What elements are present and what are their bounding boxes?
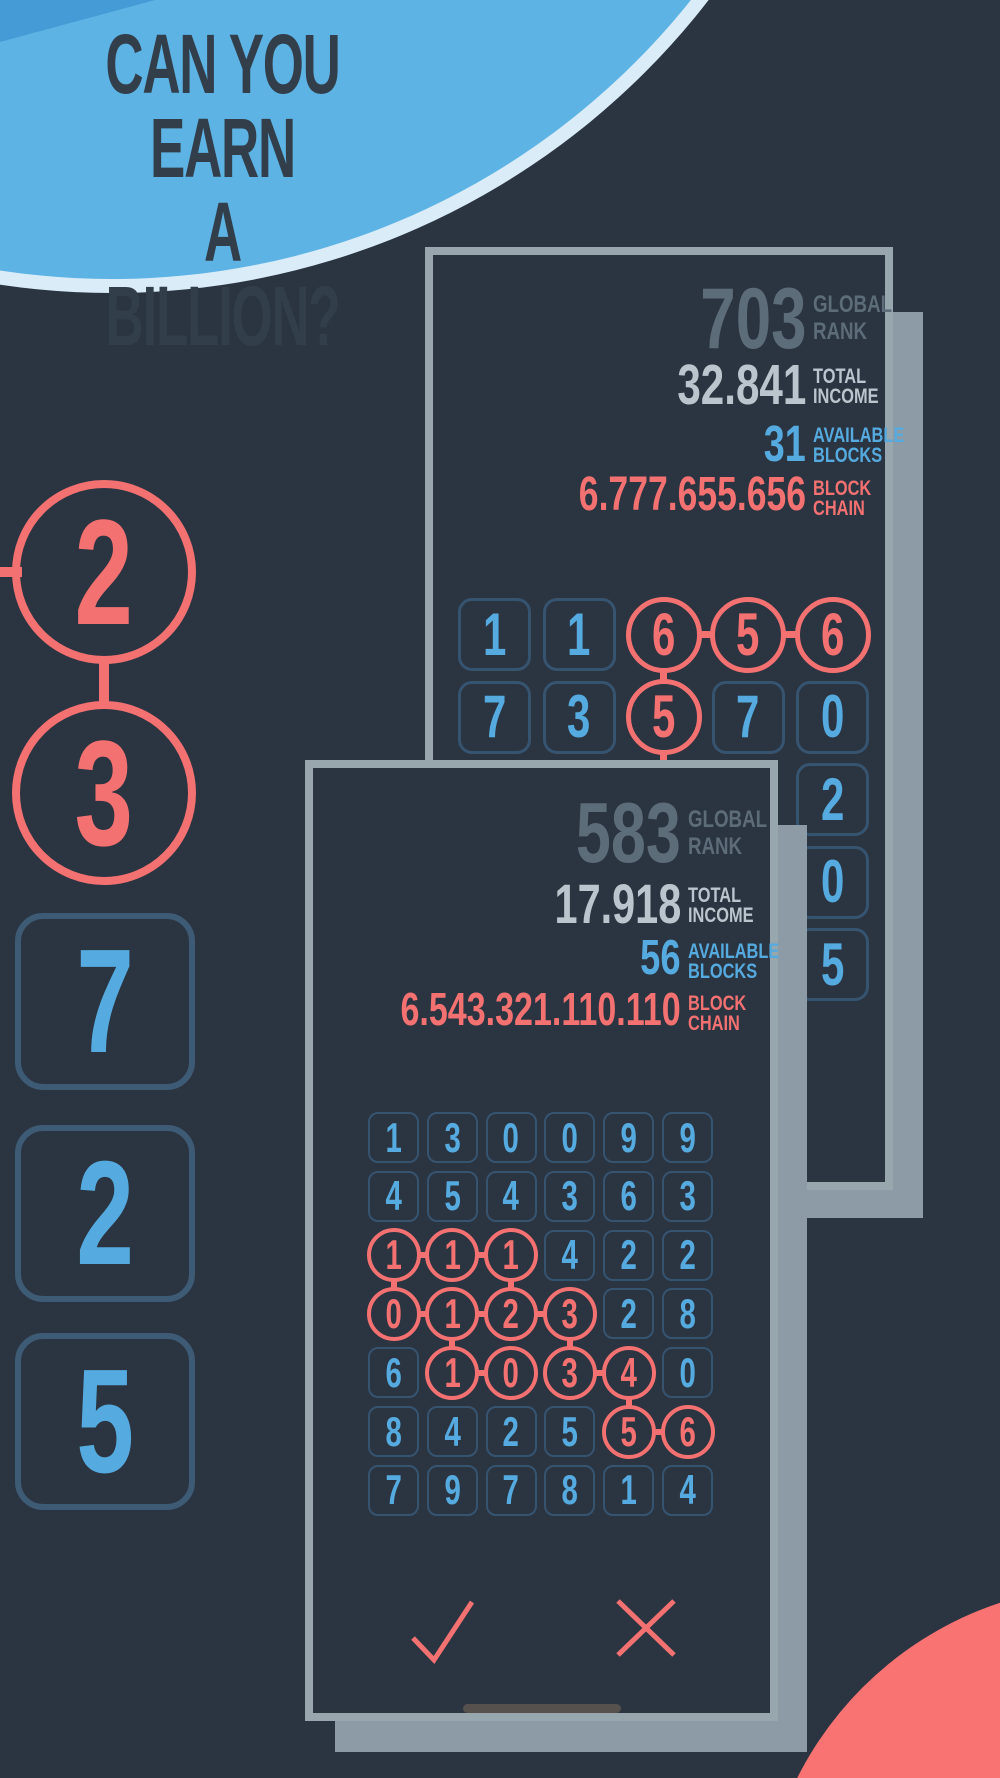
grid-cell-value: 5 — [562, 1411, 578, 1453]
sidebar-block-value: 2 — [75, 497, 133, 647]
home-indicator — [463, 1704, 621, 1713]
sidebar-block-value: 5 — [76, 1348, 134, 1496]
grid-cell-value: 6 — [621, 1175, 637, 1217]
grid-cell[interactable]: 2 — [603, 1230, 654, 1281]
grid-cell-value: 0 — [503, 1352, 519, 1394]
grid-cell-value: 5 — [444, 1175, 460, 1217]
grid-cell-circled[interactable]: 5 — [710, 597, 786, 673]
grid-cell-circled[interactable]: 1 — [484, 1228, 538, 1282]
stat-block-chain-label: BLOCKCHAIN — [813, 479, 871, 519]
stat-global-rank-label: GLOBALRANK — [813, 291, 892, 345]
grid-cell[interactable]: 0 — [544, 1112, 595, 1163]
page-title-line2: A BILLION? — [82, 190, 362, 358]
grid-cell[interactable]: 6 — [603, 1171, 654, 1222]
grid-cell-circled[interactable]: 6 — [661, 1405, 715, 1459]
grid-cell-value: 8 — [385, 1411, 401, 1453]
grid-cell[interactable]: 9 — [427, 1465, 478, 1516]
grid-cell-circled[interactable]: 3 — [543, 1287, 597, 1341]
grid-cell-value: 4 — [562, 1234, 578, 1276]
grid-cell-circled[interactable]: 1 — [425, 1228, 479, 1282]
grid-cell-value: 4 — [444, 1411, 460, 1453]
sidebar-square-block: 2 — [15, 1125, 195, 1302]
sidebar-block-value: 3 — [75, 718, 133, 868]
stat-available-blocks-value: 31 — [764, 418, 806, 469]
grid-cell[interactable]: 7 — [368, 1465, 419, 1516]
grid-cell-circled[interactable]: 1 — [425, 1346, 479, 1400]
grid-cell-value: 1 — [567, 605, 590, 665]
stat-block-chain-label: BLOCKCHAIN — [688, 994, 746, 1034]
grid-cell-circled[interactable]: 5 — [602, 1405, 656, 1459]
grid-cell-value: 4 — [621, 1352, 637, 1394]
grid-cell-value: 4 — [385, 1175, 401, 1217]
page-title: CAN YOU EARN A BILLION? — [82, 22, 362, 358]
grid-cell-value: 6 — [385, 1352, 401, 1394]
sidebar-chain-link-v — [99, 658, 109, 708]
grid-cell-circled[interactable]: 4 — [602, 1346, 656, 1400]
grid-cell[interactable]: 4 — [662, 1465, 713, 1516]
grid-cell-value: 1 — [444, 1234, 460, 1276]
stat-available-blocks-label: AVAILABLEBLOCKS — [688, 942, 779, 982]
grid-cell-value: 3 — [567, 687, 590, 747]
grid-cell-value: 6 — [652, 605, 675, 665]
grid-cell-circled[interactable]: 6 — [626, 597, 702, 673]
grid-cell-circled[interactable]: 3 — [543, 1346, 597, 1400]
grid-cell[interactable]: 1 — [603, 1465, 654, 1516]
grid-cell[interactable]: 7 — [458, 681, 531, 754]
sidebar-square-block: 5 — [15, 1333, 195, 1510]
grid-cell-value: 3 — [562, 1175, 578, 1217]
grid-cell[interactable]: 5 — [427, 1171, 478, 1222]
stat-total-income-label: TOTALINCOME — [813, 367, 879, 407]
grid-cell[interactable]: 0 — [662, 1347, 713, 1398]
grid-cell-value: 0 — [821, 852, 844, 912]
check-icon — [405, 1596, 481, 1666]
grid-cell-value: 7 — [385, 1469, 401, 1511]
grid-cell[interactable]: 4 — [368, 1171, 419, 1222]
grid-cell[interactable]: 7 — [486, 1465, 537, 1516]
grid-cell-value: 2 — [503, 1293, 519, 1335]
grid-cell-value: 9 — [621, 1117, 637, 1159]
grid-cell-value: 2 — [503, 1411, 519, 1453]
grid-cell[interactable]: 8 — [368, 1406, 419, 1457]
grid-cell-value: 0 — [503, 1117, 519, 1159]
grid-cell[interactable]: 3 — [662, 1171, 713, 1222]
grid-cell-value: 2 — [679, 1234, 695, 1276]
screenshot-root: CAN YOU EARN A BILLION? 703GLOBALRANK32.… — [0, 0, 1000, 1778]
stat-total-income-label: TOTALINCOME — [688, 886, 754, 926]
grid-cell-value: 3 — [444, 1117, 460, 1159]
stat-global-rank-label: GLOBALRANK — [688, 806, 767, 860]
grid-cell-circled[interactable]: 5 — [626, 679, 702, 755]
grid-cell-value: 8 — [562, 1469, 578, 1511]
grid-cell-value: 7 — [736, 687, 759, 747]
grid-cell-value: 0 — [562, 1117, 578, 1159]
grid-cell-circled[interactable]: 0 — [367, 1287, 421, 1341]
grid-cell-value: 2 — [621, 1234, 637, 1276]
grid-cell-value: 7 — [503, 1469, 519, 1511]
stat-total-income-value: 17.918 — [554, 876, 681, 932]
grid-cell-value: 0 — [385, 1293, 401, 1335]
grid-cell[interactable]: 1 — [543, 598, 616, 671]
grid-cell-circled[interactable]: 2 — [484, 1287, 538, 1341]
grid-cell[interactable]: 2 — [603, 1288, 654, 1339]
grid-cell-value: 8 — [679, 1293, 695, 1335]
grid-cell-value: 2 — [821, 770, 844, 830]
grid-cell-circled[interactable]: 1 — [367, 1228, 421, 1282]
grid-cell-value: 5 — [736, 605, 759, 665]
grid-cell-value: 6 — [679, 1411, 695, 1453]
stat-block-chain-value: 6.543.321.110.110 — [401, 986, 681, 1032]
sidebar-circled-block: 2 — [12, 480, 196, 664]
grid-cell[interactable]: 0 — [796, 681, 869, 754]
grid-cell[interactable]: 4 — [544, 1230, 595, 1281]
grid-cell-value: 5 — [652, 687, 675, 747]
grid-cell[interactable]: 2 — [486, 1406, 537, 1457]
grid-cell[interactable]: 6 — [368, 1347, 419, 1398]
grid-cell-value: 9 — [679, 1117, 695, 1159]
grid-cell-value: 1 — [444, 1293, 460, 1335]
grid-cell-value: 3 — [562, 1293, 578, 1335]
sidebar-block-value: 2 — [76, 1140, 134, 1288]
stat-available-blocks-value: 56 — [641, 934, 681, 983]
grid-cell[interactable]: 5 — [544, 1406, 595, 1457]
cancel-button[interactable] — [613, 1597, 679, 1659]
grid-cell[interactable]: 9 — [662, 1112, 713, 1163]
grid-cell-value: 1 — [621, 1469, 637, 1511]
grid-cell[interactable]: 3 — [544, 1171, 595, 1222]
grid-cell[interactable]: 1 — [368, 1112, 419, 1163]
grid-cell[interactable]: 1 — [458, 598, 531, 671]
grid-cell-value: 1 — [503, 1234, 519, 1276]
grid-cell-value: 7 — [483, 687, 506, 747]
grid-cell-circled[interactable]: 6 — [795, 597, 871, 673]
grid-cell-value: 4 — [503, 1175, 519, 1217]
grid-cell[interactable]: 3 — [543, 681, 616, 754]
grid-cell-value: 5 — [821, 935, 844, 995]
grid-cell-circled[interactable]: 0 — [484, 1346, 538, 1400]
sidebar-block-value: 7 — [76, 928, 134, 1076]
grid-cell[interactable]: 8 — [544, 1465, 595, 1516]
page-title-line1: CAN YOU EARN — [82, 22, 362, 190]
stat-global-rank-value: 703 — [700, 276, 806, 362]
stat-total-income-value: 32.841 — [677, 357, 806, 414]
grid-cell-value: 3 — [679, 1175, 695, 1217]
grid-cell-value: 1 — [385, 1117, 401, 1159]
stat-block-chain-value: 6.777.655.656 — [579, 471, 806, 519]
grid-cell-value: 2 — [621, 1293, 637, 1335]
grid-cell-value: 6 — [821, 605, 844, 665]
grid-cell-value: 9 — [444, 1469, 460, 1511]
grid-cell-value: 0 — [821, 687, 844, 747]
cross-icon — [613, 1597, 679, 1659]
grid-cell-value: 5 — [621, 1411, 637, 1453]
grid-cell[interactable]: 0 — [486, 1112, 537, 1163]
grid-cell-value: 4 — [679, 1469, 695, 1511]
grid-cell[interactable]: 8 — [662, 1288, 713, 1339]
grid-cell[interactable]: 7 — [712, 681, 785, 754]
grid-cell[interactable]: 4 — [427, 1406, 478, 1457]
grid-cell[interactable]: 4 — [486, 1171, 537, 1222]
grid-cell-value: 1 — [483, 605, 506, 665]
grid-cell-circled[interactable]: 1 — [425, 1287, 479, 1341]
grid-cell-value: 1 — [385, 1234, 401, 1276]
grid-cell[interactable]: 3 — [427, 1112, 478, 1163]
grid-cell-value: 0 — [679, 1352, 695, 1394]
sidebar-square-block: 7 — [15, 913, 195, 1090]
confirm-button[interactable] — [405, 1596, 481, 1666]
grid-cell[interactable]: 9 — [603, 1112, 654, 1163]
grid-cell[interactable]: 2 — [662, 1230, 713, 1281]
stat-available-blocks-label: AVAILABLEBLOCKS — [813, 426, 904, 466]
sidebar-circled-block: 3 — [12, 701, 196, 885]
grid-cell-value: 1 — [444, 1352, 460, 1394]
stat-global-rank-value: 583 — [576, 791, 681, 876]
grid-cell-value: 3 — [562, 1352, 578, 1394]
